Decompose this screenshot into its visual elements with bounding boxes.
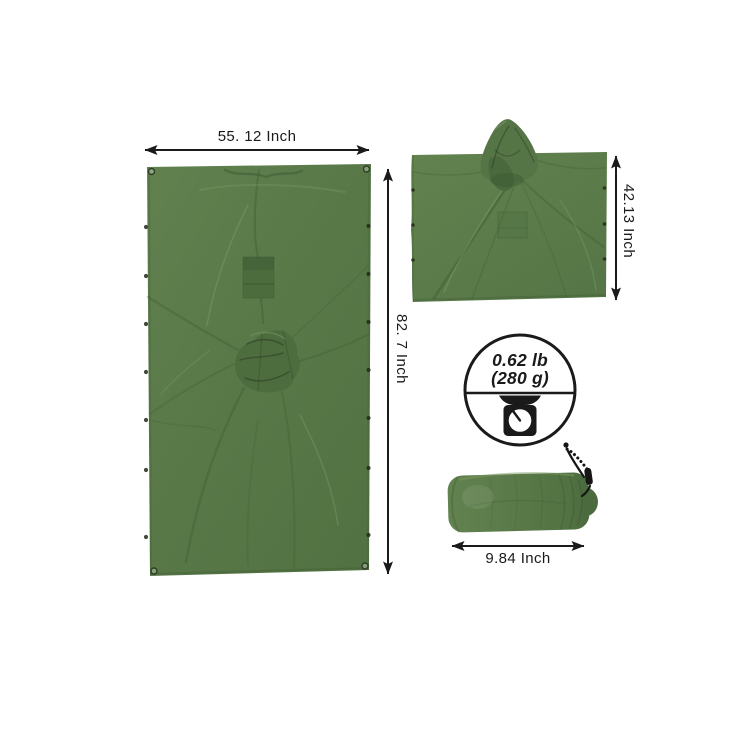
kitchen-scale-icon <box>499 396 541 437</box>
poncho-pocket <box>498 212 527 238</box>
weight-pounds-label: 0.62 lb <box>463 351 577 369</box>
tarp-width-label: 55. 12 Inch <box>147 128 367 145</box>
tarp-height-label: 82. 7 Inch <box>393 314 410 384</box>
poncho-figure <box>411 119 607 302</box>
poncho-height-label: 42.13 Inch <box>620 184 637 258</box>
weight-text: 0.62 lb (280 g) <box>463 351 577 387</box>
product-dimension-diagram: 55. 12 Inch 82. 7 Inch 42.13 Inch 9.84 I… <box>0 0 750 750</box>
tarp-pocket <box>243 257 274 298</box>
tarp-figure <box>144 164 371 576</box>
diagram-graphics <box>0 0 750 750</box>
sack-width-label: 9.84 Inch <box>458 550 578 567</box>
stuff-sack-figure <box>447 442 598 532</box>
weight-grams-label: (280 g) <box>463 369 577 387</box>
